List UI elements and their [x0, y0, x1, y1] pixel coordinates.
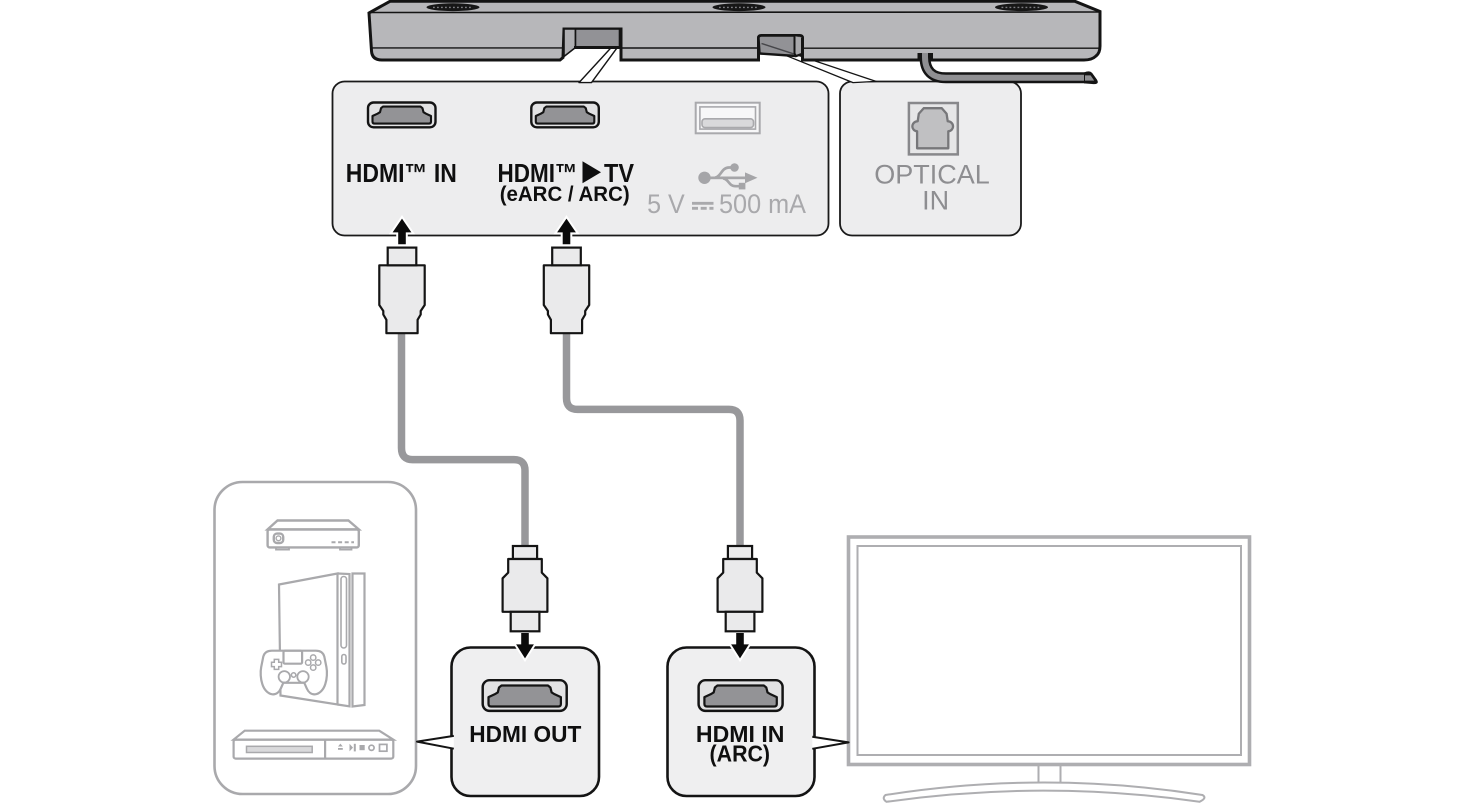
svg-text:HDMI OUT: HDMI OUT [469, 721, 581, 747]
svg-text:HDMI™ IN: HDMI™ IN [346, 158, 457, 188]
svg-text:(ARC): (ARC) [710, 741, 771, 767]
svg-text:5 V: 5 V [647, 189, 685, 219]
svg-text:500 mA: 500 mA [719, 189, 806, 219]
svg-text:(eARC / ARC): (eARC / ARC) [500, 183, 630, 206]
svg-text:IN: IN [922, 186, 949, 216]
